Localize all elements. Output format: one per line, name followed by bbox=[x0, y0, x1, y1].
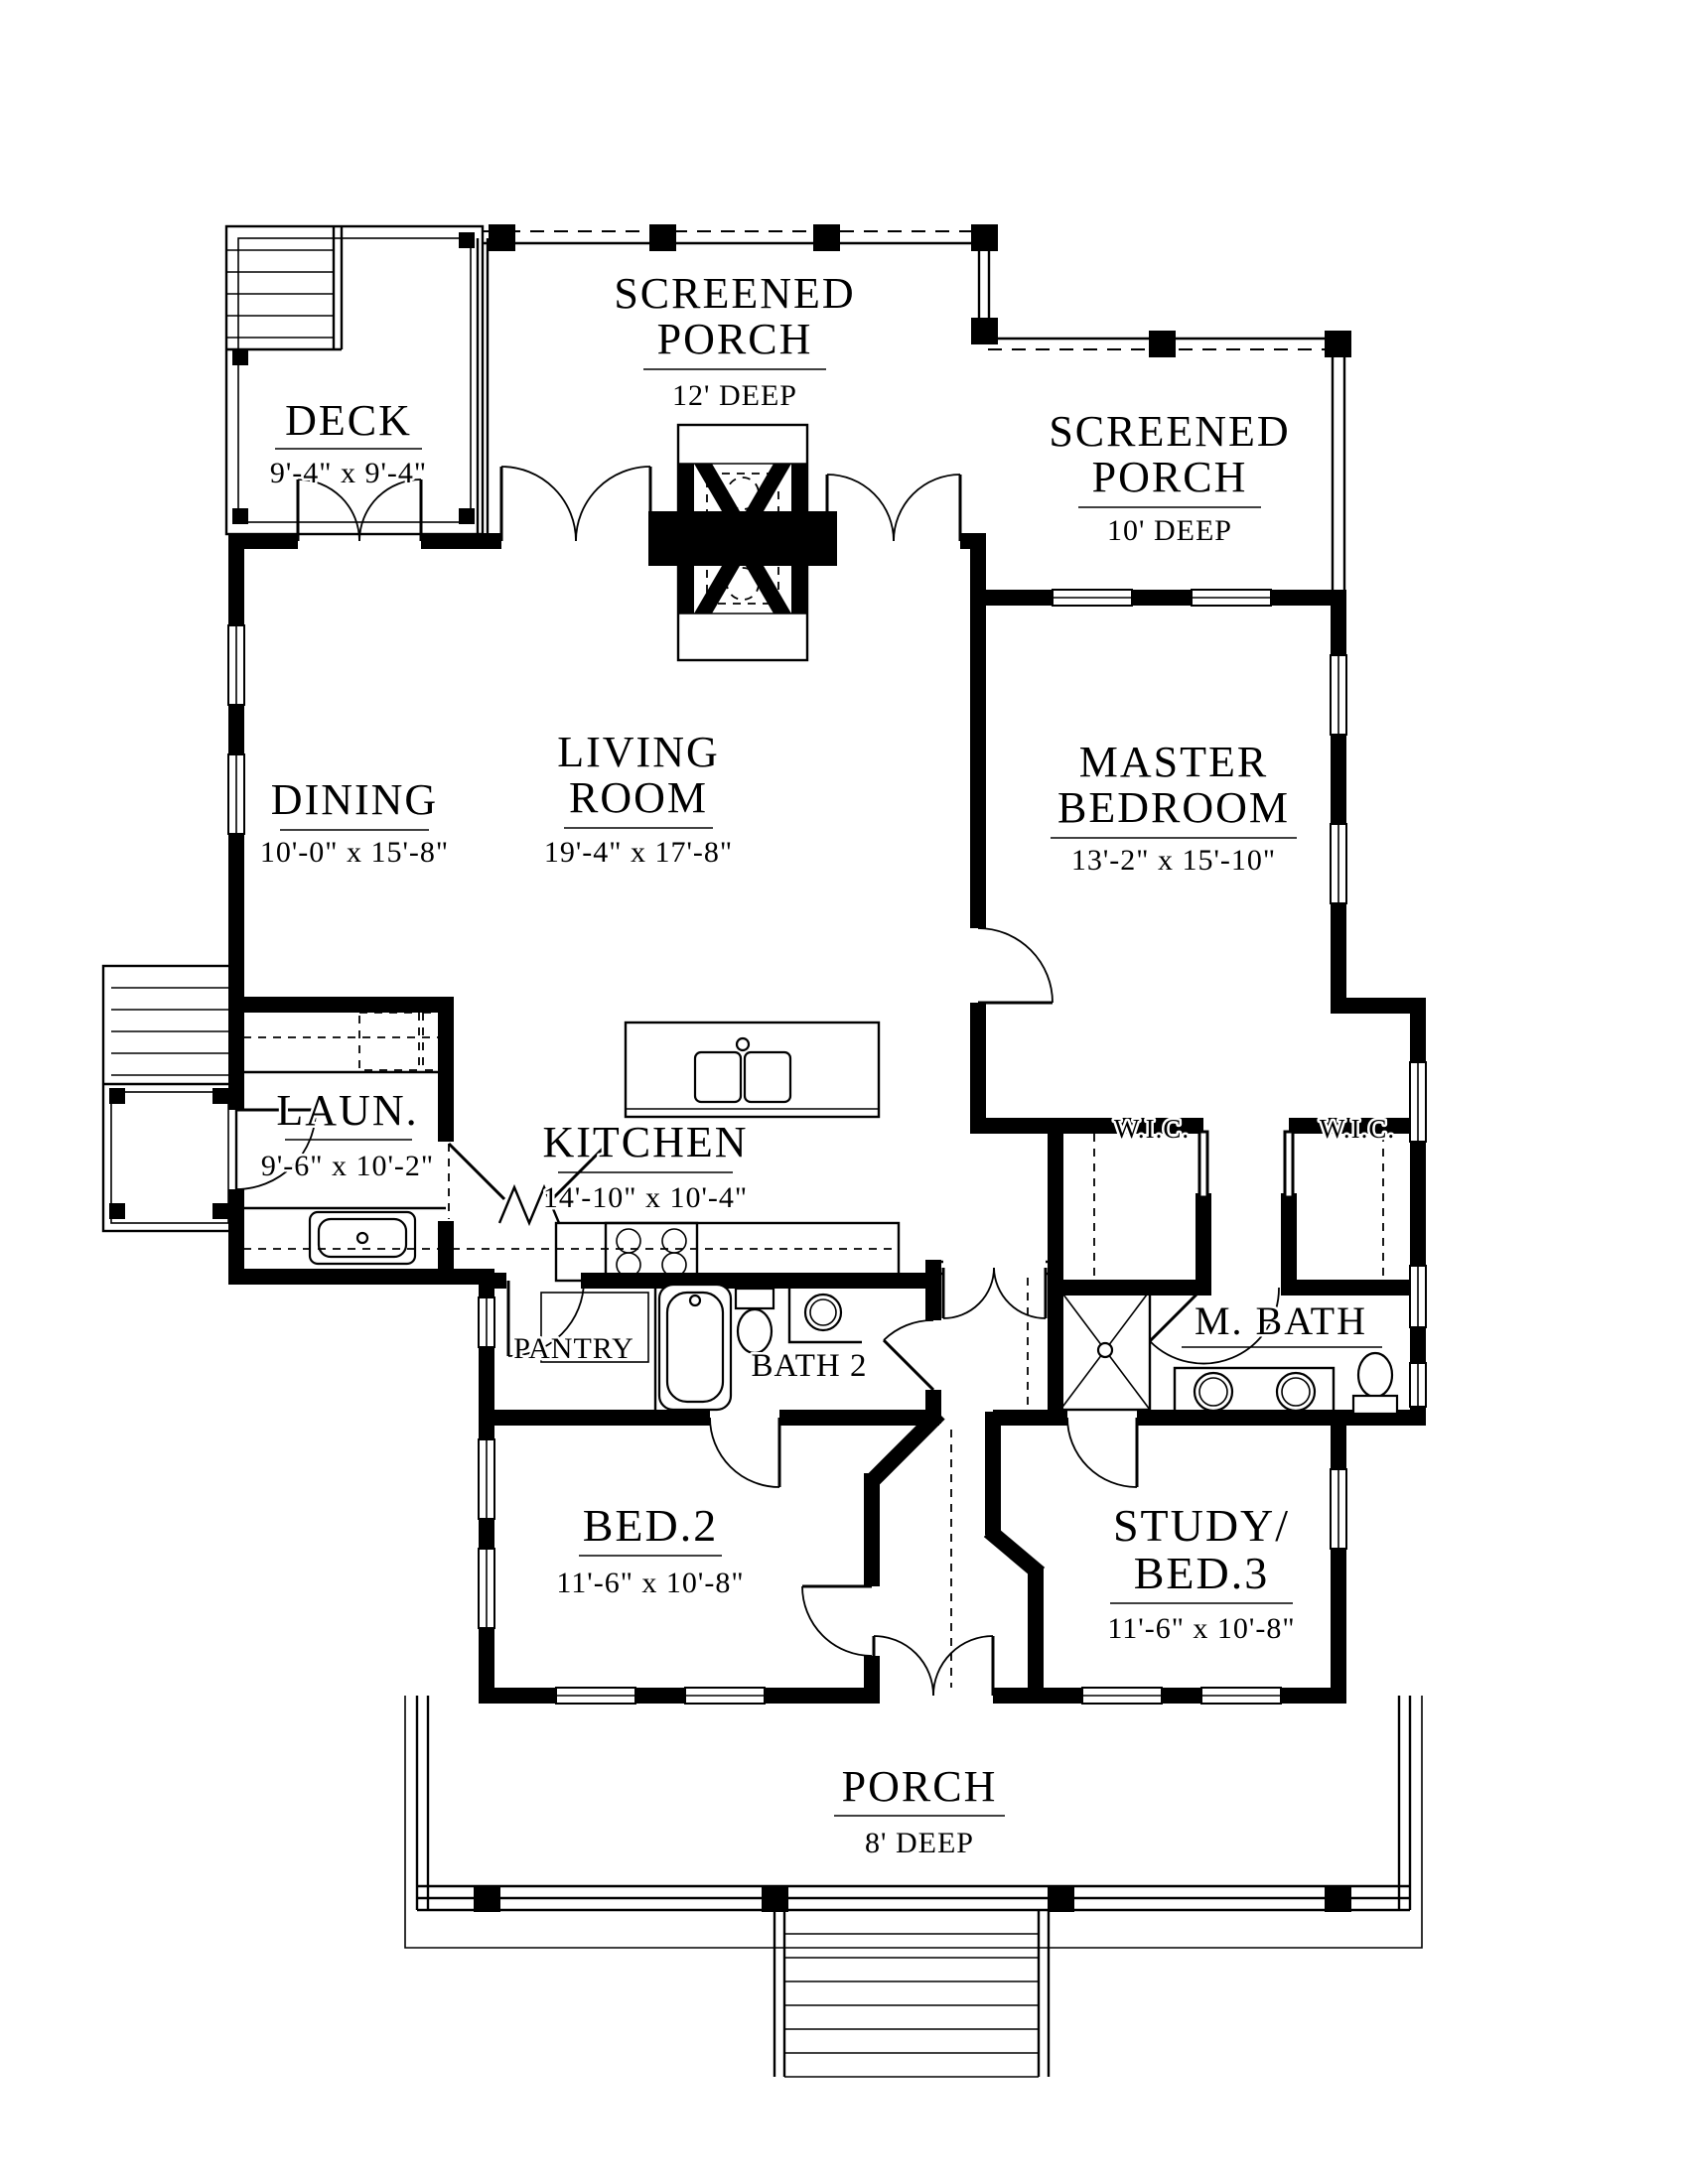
floor-plan-page: SCREENED PORCH 12' DEEP DECK 9'-4" x 9'-… bbox=[0, 0, 1688, 2184]
label-bed2: BED.2 bbox=[583, 1500, 719, 1551]
label-laundry: LAUN. bbox=[276, 1086, 418, 1135]
label-study-bed3-2: BED.3 bbox=[1134, 1548, 1270, 1598]
dims-living-room: 19'-4" x 17'-8" bbox=[544, 836, 733, 869]
kitchen-island bbox=[626, 1023, 879, 1117]
bath2-door bbox=[884, 1320, 933, 1390]
label-bath2: BATH 2 bbox=[752, 1348, 868, 1384]
label-screened-porch-top: SCREENED bbox=[614, 269, 855, 318]
window bbox=[1082, 1688, 1162, 1704]
window bbox=[1331, 655, 1346, 735]
wic-right-door bbox=[1285, 1132, 1293, 1197]
porch-french-doors-right bbox=[827, 475, 960, 541]
hall-double-doors bbox=[943, 1268, 1046, 1318]
utility-sink bbox=[236, 1208, 446, 1264]
label-master-bedroom-2: BEDROOM bbox=[1057, 783, 1290, 832]
window bbox=[1331, 1469, 1346, 1549]
window bbox=[685, 1688, 765, 1704]
master-toilet bbox=[1353, 1353, 1397, 1414]
master-bedroom-door bbox=[978, 928, 1053, 1003]
label-kitchen: KITCHEN bbox=[542, 1118, 748, 1166]
window bbox=[479, 1439, 494, 1519]
label-pantry: PANTRY bbox=[513, 1332, 634, 1365]
porch-french-doors-left bbox=[501, 467, 650, 541]
dims-study-bed3: 11'-6" x 10'-8" bbox=[1107, 1612, 1295, 1645]
window bbox=[1331, 824, 1346, 903]
label-screened-porch-right-2: PORCH bbox=[1092, 453, 1248, 501]
study-door bbox=[1067, 1418, 1137, 1487]
master-shower bbox=[1060, 1291, 1150, 1410]
label-living-room-2: ROOM bbox=[569, 773, 708, 822]
dims-deck: 9'-4" x 9'-4" bbox=[270, 457, 427, 489]
window bbox=[1410, 1363, 1426, 1407]
hall-cased-opening bbox=[925, 1262, 1055, 1274]
wic-left-door bbox=[1199, 1132, 1207, 1197]
label-screened-porch-top-2: PORCH bbox=[657, 315, 813, 363]
label-dining: DINING bbox=[271, 775, 438, 824]
label-screened-porch-right: SCREENED bbox=[1049, 407, 1290, 456]
label-porch: PORCH bbox=[842, 1762, 998, 1811]
label-wic-right: W.I.C. bbox=[1320, 1114, 1395, 1144]
window bbox=[479, 1549, 494, 1628]
dims-kitchen: 14'-10" x 10'-4" bbox=[543, 1181, 748, 1214]
bed2-closet-door bbox=[802, 1586, 872, 1656]
label-master-bath: M. BATH bbox=[1195, 1298, 1367, 1343]
window bbox=[1201, 1688, 1281, 1704]
window bbox=[228, 625, 244, 705]
kitchen-range bbox=[556, 1223, 899, 1281]
window bbox=[1192, 590, 1271, 606]
dims-master-bedroom: 13'-2" x 15'-10" bbox=[1071, 844, 1276, 877]
bath2-tub bbox=[659, 1285, 731, 1410]
washer bbox=[359, 1013, 419, 1070]
label-wic-left: W.I.C. bbox=[1114, 1114, 1190, 1144]
dims-bed2: 11'-6" x 10'-8" bbox=[556, 1567, 744, 1599]
window bbox=[228, 754, 244, 834]
dims-porch: 8' DEEP bbox=[865, 1827, 974, 1859]
window bbox=[1410, 1266, 1426, 1327]
bath2-toilet bbox=[736, 1289, 774, 1353]
dims-screened-porch-top: 12' DEEP bbox=[672, 379, 797, 412]
label-living-room: LIVING bbox=[557, 728, 720, 776]
bed2-door bbox=[710, 1418, 779, 1487]
master-vanity bbox=[1175, 1368, 1334, 1416]
label-deck: DECK bbox=[285, 396, 412, 445]
window bbox=[556, 1688, 635, 1704]
label-master-bedroom: MASTER bbox=[1079, 738, 1268, 786]
fireplace bbox=[648, 425, 837, 660]
front-entry-doors bbox=[874, 1636, 993, 1696]
dims-laundry: 9'-6" x 10'-2" bbox=[261, 1150, 434, 1182]
floor-plan-drawing: SCREENED PORCH 12' DEEP DECK 9'-4" x 9'-… bbox=[0, 0, 1688, 2184]
dims-screened-porch-right: 10' DEEP bbox=[1107, 514, 1232, 547]
bath2-sink bbox=[789, 1286, 862, 1342]
window bbox=[479, 1297, 494, 1347]
window bbox=[1053, 590, 1132, 606]
window bbox=[1410, 1062, 1426, 1142]
dims-dining: 10'-0" x 15'-8" bbox=[260, 836, 449, 869]
label-study-bed3: STUDY/ bbox=[1113, 1500, 1290, 1551]
